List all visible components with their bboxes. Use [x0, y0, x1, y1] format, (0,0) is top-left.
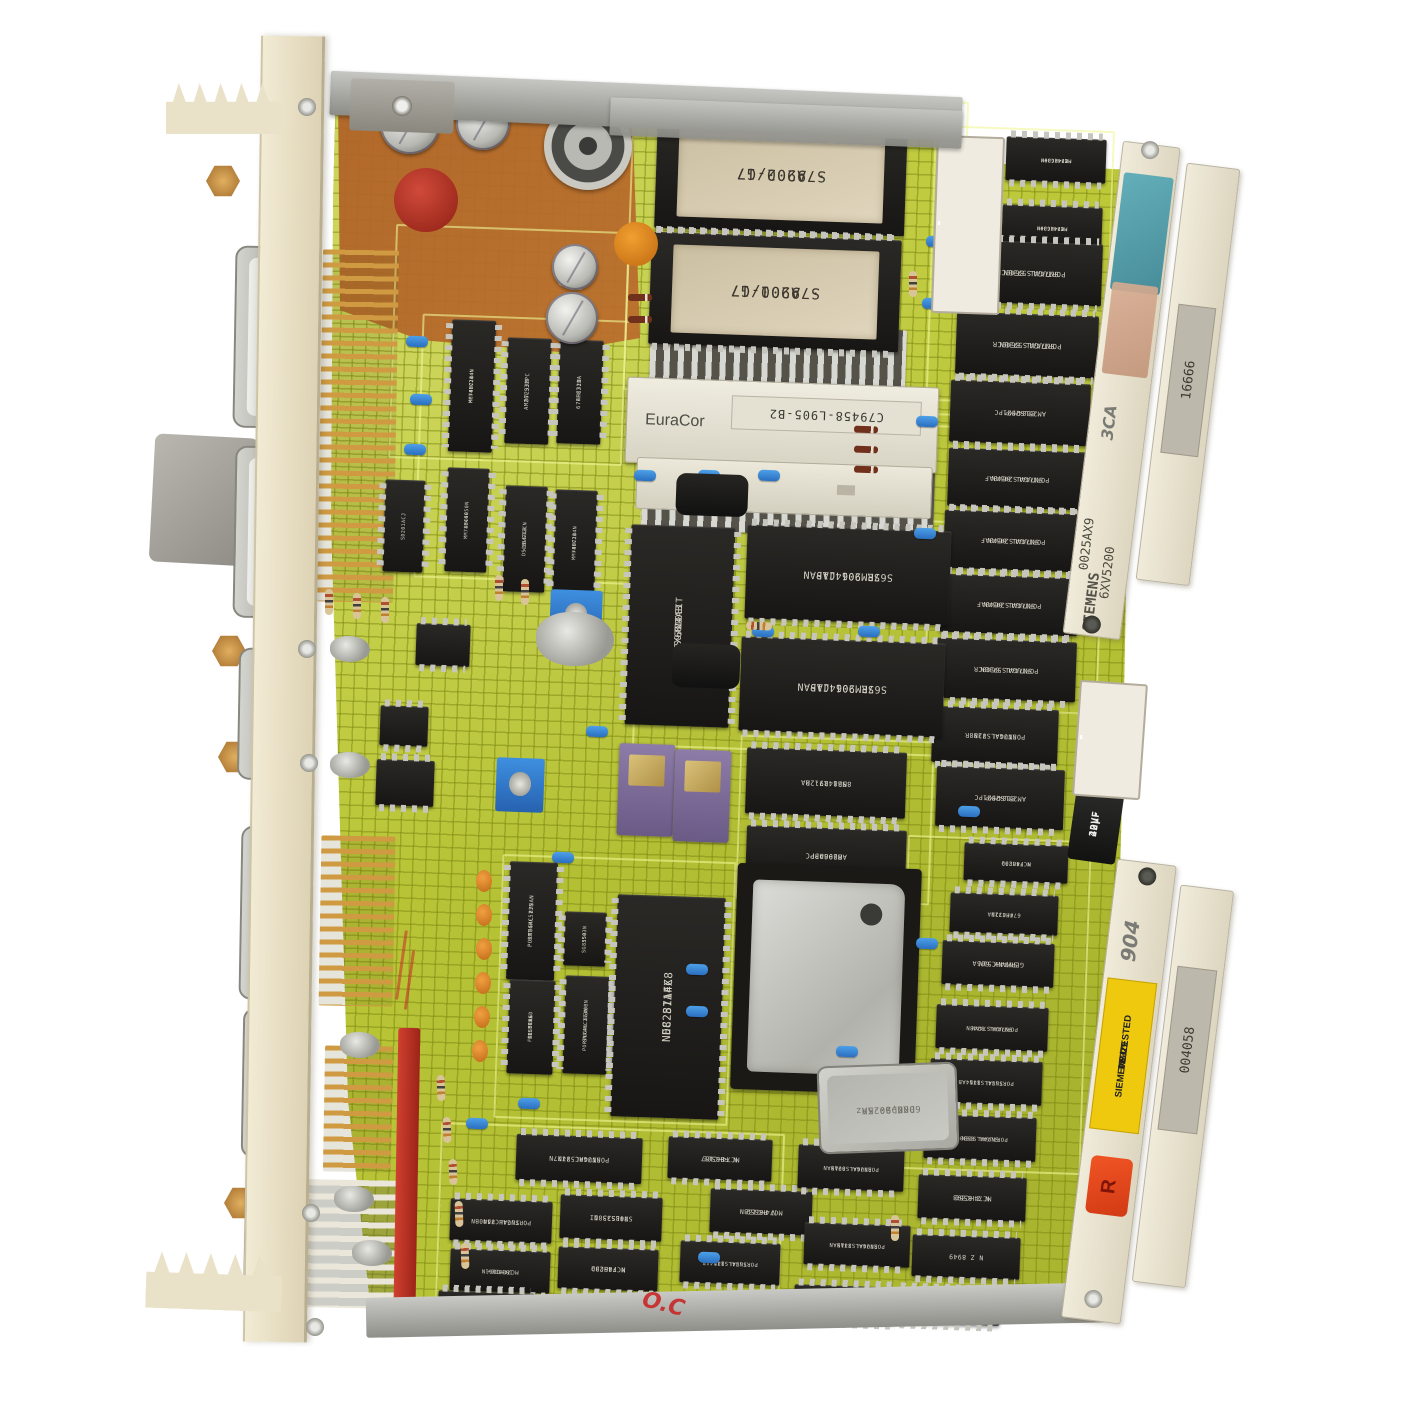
- inventory-sticker-16666: 16666: [1160, 304, 1216, 458]
- ic-chip: PORTUGAL 8640AFSN74ALS245AN: [939, 574, 1079, 637]
- ic-chip: MC74HC02N F8623D: [963, 842, 1068, 884]
- ic-chip-text: MM74HC244N: [571, 526, 578, 560]
- cap-voltage: 40V-: [1088, 810, 1104, 837]
- ic-chip-text: SN74ALS245AN: [987, 536, 1039, 546]
- ic-chip: PORTUGAL 8748NSN74ALS74AN: [935, 1004, 1048, 1052]
- panel-screw: [298, 640, 316, 658]
- jumper-block: [406, 336, 428, 348]
- red-r-sticker: R: [1085, 1155, 1134, 1218]
- euracor-brand: EuraCor: [645, 411, 705, 431]
- ic-chip: +8071BMM74HC244NMC74HC244N: [448, 319, 497, 452]
- trimmer-potentiometer: [495, 757, 545, 813]
- ic-chip-text: SD201ACJ: [400, 512, 407, 539]
- jumper-block: [586, 726, 608, 738]
- jumper-block: [552, 852, 574, 864]
- ic-chip: NEC 8714X8D8251AFC: [610, 894, 726, 1120]
- ic-chip-label: PORTUGAL 8777NSN74HC574N: [519, 1138, 638, 1180]
- ic-chip-text: SN74HC51N: [978, 959, 1017, 968]
- cpu-socket: [730, 863, 922, 1095]
- eprom-2: S79200-G7 · A901/17: [648, 232, 902, 353]
- ic-chip-text: SN74ALS00AN: [830, 1164, 871, 1172]
- serial-number: 004058: [1177, 1026, 1198, 1074]
- dip-switch: 7: [1081, 731, 1082, 745]
- ic-chip-label: +8071BMM74HC244N: [556, 493, 593, 592]
- ic-chip-text: SN74HC574N: [557, 1154, 600, 1164]
- ic-chip-label: AM25LS2521PC8604MMP: [939, 770, 1061, 826]
- ic-chip-label: PORTUGAL 8540BNSN74HC74N: [453, 1202, 548, 1239]
- ic-chip-text: SN74LS14N: [969, 1078, 1003, 1086]
- ic-chip: 1B426B+MM74HC30NMC74HC30N: [1005, 136, 1106, 183]
- ic-chip-label: SG 3503N8550: [567, 915, 603, 962]
- ic-chip: +8071BMM74HC244N: [552, 489, 598, 596]
- ic-chip: 74LS258NSN08533 II: [559, 1194, 662, 1242]
- ic-chip-label: +8071BMM74HC244NMC74HC244N: [452, 323, 492, 448]
- ic-chip: PORTUGAL 8640BNSN74HC273N: [562, 975, 609, 1074]
- ic-chip-text: SN74ALS245AN: [991, 474, 1043, 484]
- ic-chip-text: SN74HC573N: [528, 902, 536, 939]
- jumper-block: [404, 444, 426, 456]
- ic-chip-text: S67E 901 JAPAN: [803, 567, 893, 583]
- ic-chip-text: SN74HC74N: [483, 1217, 519, 1226]
- diode: [628, 294, 652, 301]
- dip-switch-slider: 7: [1081, 732, 1082, 744]
- ic-chip: PORTUGAL 8640AFSN74ALS245AN: [947, 448, 1087, 511]
- ic-chip-text: S67E 901 JAPAN: [797, 679, 887, 695]
- ic-chip: SRM2064C15S67E 901 JAPAN: [738, 636, 945, 737]
- ic-chip-text: 8604MMP: [985, 793, 1015, 802]
- ic-chip-label: 1B466MM74HC4050N: [448, 471, 485, 568]
- jumper-block: [916, 938, 938, 950]
- front-panel: [243, 36, 325, 1343]
- crystal-code: DKC-20-5A: [861, 1100, 915, 1115]
- rail-top-screw: [1140, 140, 1160, 160]
- ic-chip-text: DS26LS32CN: [521, 522, 528, 556]
- ic-chip-label: 74HC32N6 FF8712A: [560, 343, 599, 440]
- ic-chip-label: MC74HC393N Z 8550: [921, 1178, 1022, 1217]
- jumper-block: [686, 1006, 708, 1018]
- ic-chip-label: MB8417-208521 R91 RA: [749, 751, 903, 814]
- dip-switch-bank: 1234567: [1072, 680, 1148, 800]
- crystal-label: KDS-2 6000,00 KHz DKC-20-5A: [827, 1072, 949, 1144]
- ic-chip-label: SIEMENSFZL 514GDAUSTRIA: [511, 983, 552, 1070]
- panel-screw: [306, 1318, 324, 1336]
- capacitor-orange: [476, 938, 492, 960]
- jumper-block: [858, 626, 880, 638]
- ic-chip: S9724ABSCX6810EIT/N1: [625, 524, 736, 728]
- ic-chip-label: [419, 627, 466, 663]
- mounting-bracket: [349, 78, 455, 134]
- siemens-tested-sticker: SIEMENS/TESTED VP L1 P5329: [1089, 977, 1157, 1134]
- ic-chip-label: SD201ACJ: [387, 483, 422, 568]
- ic-chip-label: GERMANY 605ASN74HC51N: [945, 944, 1050, 984]
- ic-chip-label: PORTUGAL 8748NSN74ALS74AN: [939, 1008, 1044, 1048]
- eprom-2-date: · A901/17: [730, 281, 821, 302]
- ic-chip-text: 6 FF8712A: [987, 910, 1021, 918]
- ic-chip-label: 74HC32N6 FF8712A: [953, 896, 1054, 931]
- ic-chip: PORTUGAL 8714ABSN74LS14N: [679, 1240, 780, 1285]
- resistor: [325, 589, 333, 615]
- jumper-block: [466, 1118, 488, 1130]
- ic-chip-text: MC74HC161N: [481, 1267, 518, 1275]
- jumper-block: [698, 1252, 720, 1264]
- ic-chip: GERMANY 605ASN74HC51N: [941, 940, 1054, 988]
- ic-chip: AM25LS2521PC8604MMP: [935, 766, 1065, 830]
- connector-pin-comb: [323, 1045, 393, 1172]
- capacitor-orange: [476, 870, 492, 892]
- jumper-block: [686, 964, 708, 976]
- eprom-2-label: S79200-G7 · A901/17: [671, 244, 880, 339]
- sticker-residue-tan: [1102, 282, 1159, 379]
- jumper-block: [914, 528, 936, 540]
- capacitor-orange: [475, 972, 491, 994]
- rail-bottom-screw-bottom: [1083, 1289, 1103, 1309]
- ic-chip-label: N P8652MC74HC138N: [713, 1192, 808, 1231]
- panel-screw: [302, 1204, 320, 1222]
- ic-chip: N Z 8949: [911, 1234, 1020, 1280]
- ic-chip-label: PORTUGAL 8713ANSN74ALS00AN: [801, 1148, 900, 1187]
- capacitor-22uf-label: 22µF 40V-: [1071, 788, 1120, 861]
- inventory-number: 16666: [1178, 360, 1198, 401]
- ic-chip-label: S9724ABSCX6810EIT/N1: [629, 528, 732, 723]
- ic-chip-text: AM26LS32PC: [524, 372, 532, 409]
- ic-chip-text: SN74ALS573BN: [1003, 268, 1059, 279]
- diode: [628, 316, 652, 323]
- ic-chip-text: SN74ALS73N: [973, 731, 1016, 741]
- capacitor-orange: [474, 1006, 490, 1028]
- ic-chip-label: PORTUGAL 8640CRSN74ALS573BN: [959, 316, 1095, 375]
- ic-chip: 74HC32N6 FF8712A: [949, 892, 1058, 936]
- ic-chip-text: SN74ALS573BN: [980, 665, 1032, 675]
- ic-chip: SD201ACJ: [382, 479, 425, 572]
- ic-chip: PORTUGAL 8640CRSN74ALS573BN: [955, 312, 1099, 379]
- ic-chip-text: SN74ALS573BN: [999, 340, 1055, 351]
- crystal-oscillator: KDS-2 6000,00 KHz DKC-20-5A: [817, 1062, 960, 1155]
- cpu-pin1-dot: [860, 903, 883, 926]
- euracor-part-number: C79458-L905-B2: [769, 407, 885, 425]
- ic-chip-text: 8604MMP: [1005, 408, 1035, 417]
- red-r-letter: R: [1097, 1178, 1122, 1195]
- handwritten-3ca: 3CA: [1098, 379, 1124, 441]
- ic-chip-label: PORTUGAL 8640BNSN74HC273N: [566, 979, 605, 1070]
- ic-chip-text: N Z 8949: [949, 1252, 984, 1261]
- ic-chip-text: MC74HC138N: [739, 1207, 782, 1217]
- rail-bottom-screw-top: [1137, 866, 1157, 886]
- ic-chip-label: PORTUGAL 8640AFSN74ALS245AN: [943, 578, 1075, 633]
- solder-blob-large: [536, 612, 614, 666]
- ic-chip-label: PORTUGAL 8288RSN74ALS73N: [935, 710, 1055, 762]
- ic-chip-text: SN74ALS74AN: [971, 1024, 1012, 1032]
- ic-chip-text: N F8650E: [703, 1154, 738, 1163]
- jumper-block: [958, 806, 980, 818]
- resistor: [381, 597, 389, 623]
- ic-chip: MC74HC02N F8623D: [557, 1246, 658, 1291]
- ic-chip: PORTUGAL 873ANSN74HC573N: [506, 861, 558, 981]
- ceramic-ic-purple: [616, 743, 675, 837]
- ic-chip-label: 8723JMAM26LS32PC: [508, 341, 547, 440]
- eprom-1-date: · A902/17: [736, 164, 827, 185]
- ic-chip-text: 8606DPP: [810, 851, 843, 861]
- ic-chip: PORTUGAL 8640CRSN74ALS573BN: [935, 638, 1077, 703]
- ic-chip-text: N F8623D: [1001, 859, 1031, 867]
- jumper-block: [634, 470, 656, 482]
- ic-chip: [375, 759, 435, 807]
- ic-chip: PORTUGAL 8288RSN74ALS73N: [931, 706, 1059, 766]
- ic-chip-text: /N1: [674, 617, 686, 635]
- ic-chip-label: [379, 763, 430, 803]
- ic-chip-text: SN74ALS245AN: [983, 600, 1035, 610]
- ic-chip-label: PORTUGAL 8640AFSN74ALS245AN: [947, 514, 1079, 569]
- ic-chip-text: D8251AFC: [660, 979, 676, 1036]
- solder-joint: [340, 1032, 380, 1058]
- ic-chip: PORTUGAL 8640AFSN74ALS245AN: [943, 510, 1083, 573]
- ic-chip: AM25LS2521PC8604MMP: [949, 380, 1091, 447]
- resistor: [461, 1243, 470, 1269]
- ic-chip: 74HC32N6 FF8712A: [556, 339, 604, 444]
- ic-chip-text: MM74HC4050N: [463, 501, 471, 539]
- ic-chip-label: PORTUGAL 8640AFSN74ALS245AN: [951, 452, 1083, 507]
- tested-line-3: P5329: [1116, 1041, 1130, 1070]
- sticker-residue-blue: [1110, 172, 1174, 295]
- ic-chip: <1B471BDS26LS32CN: [502, 485, 548, 592]
- ic-chip: MC74HC393N Z 8550: [917, 1174, 1026, 1222]
- dip-switch-bank: 123456: [931, 135, 1005, 315]
- photo-canvas: S79200-G7 · A902/17 S79200-G7 · A901/17 …: [0, 0, 1405, 1405]
- ic-chip-label: MC74HC02N F8623D: [968, 846, 1065, 879]
- resistor: [746, 621, 772, 630]
- ic-chip-text: 8521 R91 RA: [800, 778, 851, 789]
- ic-chip-text: MC74HC30N: [1037, 224, 1068, 231]
- ic-chip-text: SN08533 II: [589, 1213, 632, 1223]
- panel-screw: [298, 98, 316, 116]
- ic-chip: [415, 623, 470, 667]
- ic-chip-label: MC74HC157N F8650E: [671, 1140, 768, 1177]
- connector-pin-comb: [319, 835, 396, 1006]
- ic-chip: PORTUGAL 8777NSN74HC574N: [515, 1134, 643, 1184]
- red-disc-capacitor: [394, 168, 458, 232]
- ic-chip-text: 6 FF8712A: [576, 375, 584, 409]
- jumper-block: [410, 394, 432, 406]
- ic-chip-label: MC74HC02N F8623D: [561, 1250, 654, 1287]
- ic-chip-text: SN74ALS08N: [961, 1134, 998, 1142]
- resistor: [443, 1117, 452, 1143]
- ic-chip-label: [383, 709, 424, 742]
- diode: [854, 466, 878, 474]
- panel-screw: [300, 754, 318, 772]
- resistor: [449, 1159, 458, 1185]
- ic-chip: MB8417-208521 R91 RA: [745, 747, 907, 819]
- resistor: [495, 575, 503, 601]
- ic-chip-label: 1B426B+MM74HC30NMC74HC30N: [1009, 140, 1102, 179]
- solder-joint: [330, 636, 370, 662]
- ic-chip: N P8652MC74HC138N: [709, 1188, 812, 1236]
- ic-chip: MC74HC157N F8650E: [667, 1136, 772, 1182]
- jumper-block: [836, 1046, 858, 1058]
- ic-chip-label: SRM2064C15S67E 901 JAPAN: [749, 529, 948, 622]
- ic-chip-label: PORTUGAL 8714ABSN74LS14N: [683, 1244, 776, 1281]
- extraction-handle-top: [166, 82, 282, 134]
- ic-chip-label: AM25LS2521PC8604MMP: [953, 384, 1087, 443]
- ic-chip-label: <1B471BDS26LS32CN: [506, 489, 543, 588]
- resistor: [909, 271, 917, 297]
- ic-chip: 8723JMAM26LS32PC: [504, 337, 552, 444]
- ic-chip-label: PORTUGAL 873ANSN74HC573N: [510, 865, 554, 976]
- resistor: [891, 1215, 899, 1241]
- transistor: [671, 643, 740, 689]
- hex-standoff: [206, 164, 240, 198]
- ic-chip-text: 8550: [582, 932, 589, 946]
- diode: [854, 426, 878, 434]
- solder-joint: [330, 752, 370, 778]
- ceramic-ic-purple: [672, 749, 731, 843]
- handwritten-904: 904: [1116, 891, 1148, 963]
- orange-disc-capacitor: [614, 222, 658, 266]
- jumper-block: [518, 1098, 540, 1110]
- ic-chip-text: AUSTRIA: [527, 1015, 534, 1039]
- ic-chip-text: MC74HC30N: [1041, 156, 1072, 163]
- resistor: [455, 1201, 464, 1227]
- euracor-part-sticker: C79458-L905-B2: [731, 395, 922, 436]
- ic-chip: [379, 705, 428, 747]
- jumper-block: [758, 470, 780, 482]
- transistor: [675, 473, 748, 517]
- resistor: [353, 593, 361, 619]
- solder-joint: [352, 1240, 392, 1266]
- capacitor-orange: [476, 904, 492, 926]
- resistor: [437, 1075, 446, 1101]
- ic-chip-text: SN74ALS74AN: [836, 1241, 877, 1249]
- resistor: [521, 579, 529, 605]
- ic-chip: PORTUGAL 8540BNSN74HC74N: [449, 1198, 552, 1244]
- capacitor-electrolytic: [552, 244, 598, 290]
- ic-chip-text: N F8623D: [591, 1264, 626, 1273]
- rail-top-screw-bottom: [1082, 614, 1102, 634]
- ic-chip: SRM2064C15S67E 901 JAPAN: [744, 524, 951, 625]
- ic-chip-text: MC74HC244N: [468, 369, 475, 403]
- ic-chip-label: SRM2064C15S67E 901 JAPAN: [743, 641, 942, 734]
- jumper-block: [916, 416, 938, 428]
- ic-chip-text: SN74HC273N: [582, 1008, 589, 1042]
- solder-joint: [334, 1186, 374, 1212]
- capacitor-orange: [472, 1040, 488, 1062]
- cpu-metal-lid: [747, 879, 906, 1076]
- ic-chip-text: N Z 8550: [955, 1193, 990, 1202]
- ic-chip-label: 74LS258NSN08533 II: [563, 1198, 658, 1237]
- diode: [854, 446, 878, 454]
- ic-chip-label: PORTUGAL 8640CRSN74ALS573BN: [939, 642, 1073, 699]
- ic-chip: 1B466MM74HC4050N: [444, 467, 490, 572]
- ic-chip: SG 3503N8550: [563, 911, 607, 966]
- ic-chip-label: N Z 8949: [915, 1238, 1016, 1275]
- ic-chip: SIEMENSFZL 514GDAUSTRIA: [506, 979, 555, 1075]
- serial-sticker-004058: 004058: [1157, 966, 1217, 1135]
- capacitor-electrolytic: [546, 292, 598, 344]
